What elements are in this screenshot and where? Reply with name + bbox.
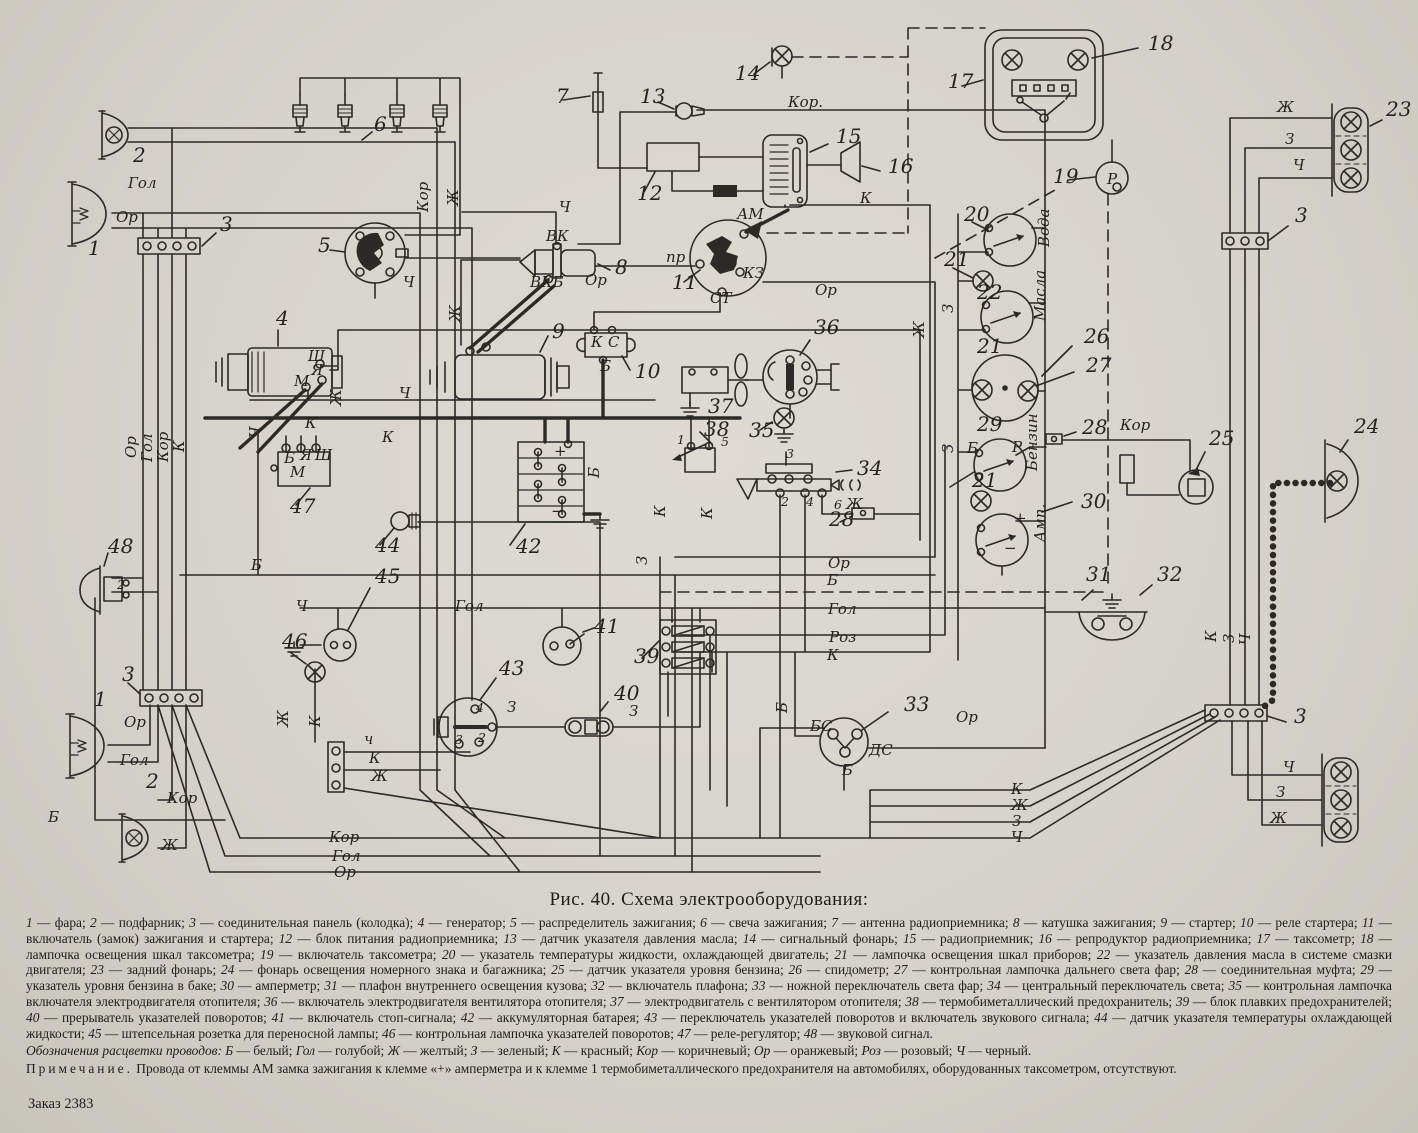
component-callout: 46: [281, 629, 308, 653]
component-callout: 48: [107, 534, 133, 558]
legend-item-number: 29: [1360, 962, 1373, 977]
wire-label: К: [170, 440, 188, 453]
wire-label: Кор.: [787, 93, 823, 111]
figure-note: Примечание. Провода от клеммы АМ замка з…: [26, 1061, 1392, 1077]
legend-item-number: 2: [90, 915, 97, 930]
wire-label: Бензин: [1023, 413, 1041, 472]
wire-label: Б: [585, 467, 603, 479]
wire-label: Р: [1106, 170, 1118, 188]
legend-item-number: 27: [894, 962, 907, 977]
legend-item-number: 46: [382, 1026, 395, 1041]
wire-label: Ж: [910, 320, 928, 339]
legend-item-number: 36: [264, 994, 277, 1009]
legend-item-number: 22: [1097, 947, 1110, 962]
wire-label: 5: [721, 434, 729, 449]
wire-label: Масла: [1031, 270, 1049, 322]
distributor-5: [330, 223, 408, 283]
component-callout: 25: [1208, 426, 1234, 450]
legend-item-number: 8: [1013, 915, 1020, 930]
wire-label: Б: [841, 761, 853, 779]
wire-label: +: [1014, 509, 1027, 527]
component-callout: 15: [836, 124, 861, 148]
legend-item-number: 39: [1176, 994, 1189, 1009]
component-callout: 21: [943, 247, 969, 271]
connector-panel-3-left-top: [138, 233, 216, 254]
wire-label: Ор: [815, 281, 837, 299]
legend-item-number: 41: [272, 1010, 285, 1025]
component-callout: 32: [1157, 562, 1182, 586]
legend-item-number: 16: [1038, 931, 1051, 946]
heater-switch-36: [763, 340, 839, 404]
legend-item-number: 1: [26, 915, 33, 930]
legend-item-number: 18: [1360, 931, 1373, 946]
wire-label: Кор: [1119, 416, 1151, 434]
component-callout: 36: [814, 315, 840, 339]
component-callout: 45: [374, 564, 400, 588]
wire-label: Ж: [845, 495, 864, 513]
legend-item-number: 34: [987, 978, 1000, 993]
legend-item-number: 5: [510, 915, 517, 930]
wire-label: 2: [116, 577, 125, 592]
legend-item-number: 26: [789, 962, 802, 977]
wire-label: 2: [477, 730, 486, 745]
wire-color-abbr: Б: [225, 1043, 233, 1058]
component-callout: 3: [1294, 704, 1307, 728]
component-callout: 35: [749, 418, 774, 442]
wire-label: 3: [455, 732, 463, 747]
tail-lamp-23-top: [1332, 104, 1382, 196]
connector-panel-3-left-bottom: [128, 683, 202, 706]
wire-label: 3: [786, 446, 794, 461]
component-callout: 9: [552, 319, 565, 343]
component-callout: 27: [1085, 353, 1112, 377]
component-callout: 24: [1353, 414, 1379, 438]
legend-item-number: 13: [503, 931, 516, 946]
fuel-sensor-25: [1120, 452, 1213, 504]
wire-label: БС: [809, 717, 833, 735]
legend-item-number: 10: [1240, 915, 1253, 930]
plafond-31-32: [1077, 585, 1152, 640]
wire-label: К: [859, 189, 872, 207]
legend-item-number: 30: [221, 978, 234, 993]
wire-label: Ч: [1293, 156, 1305, 174]
wire-label: К: [304, 414, 317, 432]
component-callout: 22: [976, 280, 1002, 304]
wire-label: К: [306, 715, 324, 728]
wire-label: З: [1276, 783, 1285, 801]
component-callout: 5: [318, 233, 331, 257]
component-callout: 44: [374, 533, 400, 557]
wire-label: −: [551, 502, 564, 520]
wire-label: Я: [299, 446, 313, 464]
wire-label: Я: [310, 361, 324, 379]
component-callout: 13: [640, 84, 665, 108]
component-callout: 29: [976, 412, 1003, 436]
wire-label: М: [289, 463, 306, 481]
wire-label: Ж: [446, 304, 464, 323]
wire-label: Ор: [334, 863, 356, 881]
component-callout: 2: [145, 769, 159, 793]
component-callout: 3: [1295, 203, 1308, 227]
component-callout: 21: [971, 468, 997, 492]
wire-label: 2: [780, 494, 789, 509]
wire-label: Ч: [296, 597, 308, 615]
wire-label: Ж: [1276, 98, 1295, 116]
tail-lamp-bottom-right: [1322, 754, 1358, 846]
component-callout: 47: [289, 494, 316, 518]
legend-item-number: 47: [677, 1026, 690, 1041]
wire-label: Вода: [1035, 208, 1053, 248]
wire-label: пр: [666, 248, 686, 266]
component-callout: 39: [634, 644, 660, 668]
wire-label: Кор: [414, 181, 432, 213]
legend-item-number: 42: [461, 1010, 474, 1025]
dash-lamp-21c: [971, 491, 991, 511]
legend-item-number: 3: [189, 915, 196, 930]
wire-color-abbr: З: [471, 1043, 478, 1058]
wire-label: АМ: [736, 205, 764, 223]
wire-label: −: [1004, 539, 1017, 557]
wire-label: Б: [250, 556, 262, 574]
legend-item-number: 17: [1257, 931, 1270, 946]
wire-label: Ор: [956, 708, 978, 726]
wire-label: Гол: [827, 600, 857, 618]
parking-lamp-2-top: [99, 111, 128, 159]
wire-label: З: [633, 556, 651, 565]
figure-text-block: Рис. 40. Схема электрооборудования: 1 — …: [26, 889, 1392, 1077]
coupling-28a: [1046, 432, 1076, 444]
lamp-connector-46: [328, 742, 344, 792]
connector-panel-3-right-bottom: [1205, 705, 1286, 722]
wire-label: Ор: [585, 271, 607, 289]
component-callout: 34: [857, 456, 882, 480]
wire-label: Б: [47, 808, 59, 826]
legend-item-number: 6: [700, 915, 707, 930]
component-callout: 11: [672, 270, 697, 294]
legend-item-number: 33: [752, 978, 765, 993]
wire-label: ВК: [545, 227, 569, 245]
turn-switch-43: [434, 678, 497, 756]
spark-plugs-6: [293, 95, 447, 140]
wire-label: Ж: [274, 709, 292, 728]
wire-label: Ор: [116, 208, 138, 226]
figure-caption: Рис. 40. Схема электрооборудования:: [26, 889, 1392, 911]
wire-label: 4: [805, 494, 814, 509]
legend-item-number: 40: [26, 1010, 39, 1025]
legend-item-number: 4: [418, 915, 425, 930]
wire-label: Ч: [403, 273, 415, 291]
wire-label: З: [629, 702, 638, 720]
legend-item-number: 7: [831, 915, 838, 930]
wire-label: 4: [475, 700, 484, 715]
wire-label: Ч: [1283, 758, 1295, 776]
central-light-switch-34: [737, 464, 860, 499]
component-callout: 23: [1385, 97, 1411, 121]
component-callout: 14: [735, 61, 760, 85]
wire-color-abbr: Роз: [861, 1043, 880, 1058]
wire-label: К: [368, 749, 381, 767]
legend-item-number: 14: [743, 931, 756, 946]
component-callout: 12: [637, 181, 662, 205]
legend-item-number: 38: [905, 994, 918, 1009]
wire-label: З: [939, 444, 957, 453]
legend-item-number: 25: [551, 962, 564, 977]
wire-color-abbr: Ор: [754, 1043, 770, 1058]
turn-indicator-lamp-46: [290, 652, 325, 682]
wire-label: К: [1202, 630, 1220, 643]
component-callout: 10: [635, 359, 661, 383]
legend-item-number: 9: [1160, 915, 1167, 930]
wire-label: К: [381, 428, 394, 446]
wire-label: Б: [966, 439, 978, 457]
component-callout: 16: [888, 154, 914, 178]
wire-color-legend: Обозначения расцветки проводов: Б — белы…: [26, 1043, 1392, 1059]
legend-item-number: 12: [279, 931, 292, 946]
wire-label: КЗ: [742, 264, 764, 282]
wire-label: К: [698, 507, 716, 520]
wire-label: ч: [364, 730, 373, 748]
legend-item-number: 43: [644, 1010, 657, 1025]
wire-label: 1: [677, 432, 685, 447]
legend-item-number: 19: [260, 947, 273, 962]
legend-item-number: 31: [324, 978, 337, 993]
wire-label: З: [939, 304, 957, 313]
wire-label: Гол: [127, 174, 157, 192]
wire-label: Гол: [454, 597, 484, 615]
scanned-page: 1234567891011121314151617181920212221262…: [0, 0, 1418, 1133]
component-callout: 26: [1083, 324, 1110, 348]
component-callout: 3: [122, 662, 135, 686]
component-callout: 17: [948, 69, 974, 93]
wire-label: Ч: [1236, 633, 1254, 645]
wire-label: Кор: [328, 828, 360, 846]
chain-conduit: [1262, 483, 1330, 708]
wire-label: С: [608, 333, 620, 351]
wire-label: М: [293, 372, 310, 390]
component-callout: 2: [132, 143, 146, 167]
headlamp-1-bottom: [66, 714, 104, 778]
component-callout: 31: [1086, 562, 1111, 586]
wire-label: Ж: [370, 767, 389, 785]
wiring-diagram: 1234567891011121314151617181920212221262…: [0, 0, 1418, 888]
wire-colors-lead: Обозначения расцветки проводов:: [26, 1043, 225, 1058]
wire-label: К: [651, 505, 669, 518]
legend-item-number: 21: [834, 947, 847, 962]
antenna-7: [563, 73, 603, 120]
wire-label: З: [1285, 130, 1294, 148]
taximeter-17: [962, 30, 1138, 140]
wire-label: Ж: [160, 836, 179, 854]
legend-item-number: 45: [88, 1026, 101, 1041]
legend-item-number: 23: [91, 962, 104, 977]
wire-label: ДС: [868, 741, 893, 759]
wire-label: Ш: [314, 446, 333, 464]
legend-item-number: 11: [1362, 915, 1374, 930]
component-callout: 8: [615, 255, 628, 279]
wire-label: Ор: [124, 713, 146, 731]
component-callout: 19: [1053, 164, 1079, 188]
component-callout: 6: [374, 112, 387, 136]
wire-label: Б: [773, 702, 791, 714]
component-callout: 28: [1081, 415, 1107, 439]
legend-item-number: 44: [1094, 1010, 1107, 1025]
wire-color-abbr: Гол: [296, 1043, 315, 1058]
component-callout: 20: [963, 202, 990, 226]
component-callout: 41: [593, 614, 619, 638]
wire-label: К: [826, 646, 839, 664]
speaker-16: [841, 142, 880, 182]
legend-item-number: 32: [591, 978, 604, 993]
parking-lamp-2-bottom: [119, 814, 148, 862]
wire-label: Ч: [1011, 828, 1023, 846]
legend-item-number: 24: [221, 962, 234, 977]
wire-label: Роз: [828, 628, 856, 646]
wire-color-abbr: Ч: [956, 1043, 965, 1058]
wire-label: Гол: [119, 751, 149, 769]
component-callout: 18: [1148, 31, 1173, 55]
legend-item-number: 37: [610, 994, 623, 1009]
print-order-number: Заказ 2383: [28, 1096, 93, 1113]
wire-label: +: [554, 442, 567, 460]
legend-item-number: 48: [804, 1026, 817, 1041]
stop-switch-41: [543, 627, 594, 665]
component-callout: 21: [976, 334, 1002, 358]
diagram-texts: 1234567891011121314151617181920212221262…: [47, 31, 1411, 881]
wire-label: Ж: [1269, 809, 1288, 827]
wire-label: Амп.: [1031, 504, 1049, 543]
wire-label: Ор: [828, 554, 850, 572]
wire-label: К: [590, 333, 603, 351]
component-callout: 30: [1081, 489, 1107, 513]
wire-color-abbr: Кор: [636, 1043, 658, 1058]
wire-label: Ч: [559, 198, 571, 216]
component-callout: 7: [556, 84, 569, 108]
radio-15: [763, 135, 828, 207]
legend-item-number: 20: [442, 947, 455, 962]
component-callout: 3: [220, 212, 233, 236]
wire-label: ВКБ: [529, 273, 564, 291]
starter-9: [430, 336, 569, 399]
wire-color-abbr: К: [552, 1043, 561, 1058]
connector-panel-3-right-top: [1222, 226, 1288, 249]
wire-color-abbr: Ж: [388, 1043, 400, 1058]
note-lead: Примечание.: [26, 1061, 133, 1076]
component-callout: 1: [94, 687, 107, 711]
wire-label: Ч: [246, 426, 264, 438]
wire-label: Ч: [399, 384, 411, 402]
flasher-40: [565, 702, 613, 736]
wire-label: Ж: [327, 388, 345, 407]
radio-fuse: [713, 185, 737, 197]
wire-label: Ж: [444, 188, 462, 207]
figure-legend: 1 — фара; 2 — подфарник; 3 — соединитель…: [26, 915, 1392, 1041]
component-callout: 42: [515, 534, 541, 558]
component-callout: 4: [275, 306, 289, 330]
wire-label: Р: [1011, 438, 1023, 456]
wire-label: 6: [834, 497, 842, 512]
component-callout: 33: [904, 692, 929, 716]
wire-label: Б: [599, 357, 611, 375]
component-callout: 43: [498, 656, 524, 680]
legend-item-number: 15: [903, 931, 916, 946]
wire-label: Кор: [166, 789, 198, 807]
legend-item-number: 28: [1185, 962, 1198, 977]
legend-item-number: 35: [1229, 978, 1242, 993]
wire-label: З: [507, 698, 516, 716]
wire-label: СТ: [710, 289, 732, 307]
component-callout: 1: [88, 236, 101, 260]
wire-label: Б: [826, 571, 838, 589]
component-callout: 37: [708, 394, 734, 418]
